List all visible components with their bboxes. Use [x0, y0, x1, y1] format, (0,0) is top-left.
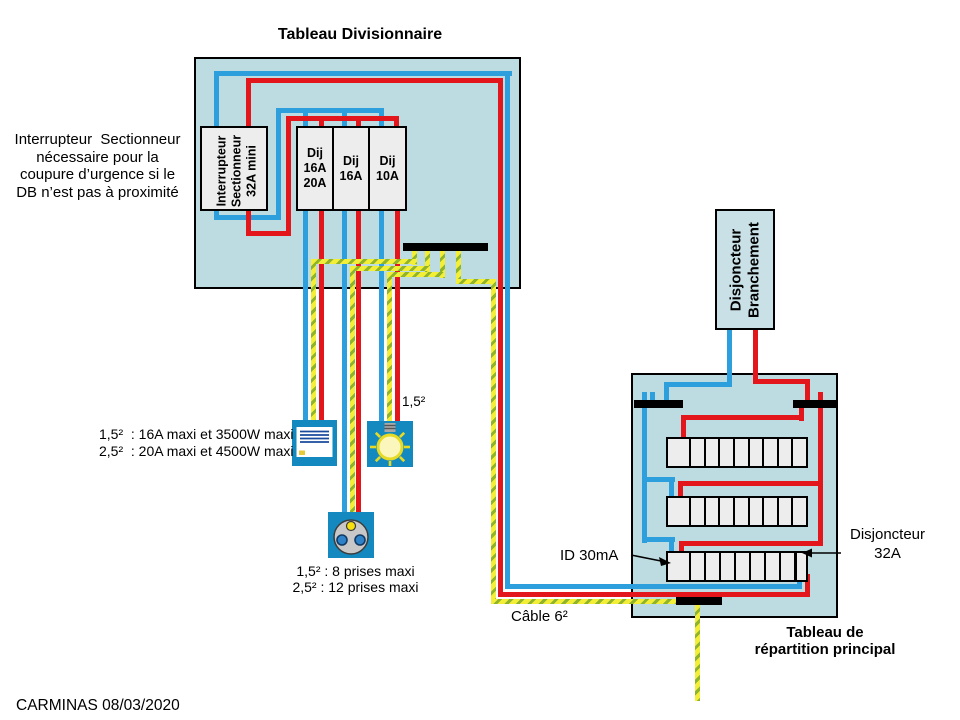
wire-phase-feed-drop — [498, 78, 503, 597]
module-cell — [720, 439, 735, 466]
module-cell — [766, 553, 781, 580]
wire-phase-db-down — [753, 329, 758, 384]
module-cell — [779, 439, 794, 466]
wire-phase-to-bulb — [395, 205, 400, 423]
module-cell — [706, 439, 721, 466]
module-cell-id30ma — [668, 553, 691, 580]
wire-neutral-bottom-run — [505, 584, 802, 589]
wire-phase-row3-h — [679, 541, 823, 546]
breaker-dij-16a-20a: Dij 16A 20A — [296, 126, 334, 211]
wire-neutral-to-bulb — [379, 205, 384, 423]
module-cell — [720, 498, 735, 525]
module-cell — [668, 439, 691, 466]
earth-bar-principal — [676, 597, 722, 605]
module-cell — [750, 439, 765, 466]
wire-earth-to-bulb — [387, 272, 392, 422]
wire-earth-to-socket — [350, 266, 355, 513]
footer-author-date: CARMINAS 08/03/2020 — [16, 697, 180, 715]
breaker-dij-10a: Dij 10A — [368, 126, 407, 211]
wire-neutral-db-down — [727, 329, 732, 386]
phase-bar-principal — [793, 400, 836, 408]
module-cell — [793, 439, 806, 466]
wire-phase-top-run — [246, 78, 503, 83]
isolator-label-line2: Sectionneur — [229, 128, 244, 213]
module-cell — [706, 498, 721, 525]
isolator-switch-box: Interrupteur Sectionneur 32A mini — [200, 126, 268, 211]
module-cell — [735, 439, 750, 466]
wire-phase-bus-riser — [286, 116, 291, 236]
breaker1-l1: Dij — [298, 146, 332, 161]
module-cell — [750, 498, 765, 525]
note-line3: coupure d’urgence si le — [0, 166, 195, 184]
wire-phase-bottom-run — [498, 592, 810, 597]
wire-neutral-feed-drop — [505, 71, 510, 589]
wire-earth-h2 — [350, 266, 430, 271]
wire-neutral-row2-v — [669, 477, 674, 498]
module-cell — [781, 553, 794, 580]
wire-phase-isolator-h — [246, 231, 291, 236]
db-label-line1: Disjoncteur — [727, 209, 745, 330]
module-cell — [751, 553, 766, 580]
principal-line1: Tableau de — [740, 624, 910, 641]
wire-neutral-db-h — [664, 382, 732, 387]
module-cell — [736, 553, 751, 580]
wire-phase-row1-h — [681, 415, 804, 420]
db-label-line2: Branchement — [745, 209, 763, 330]
note-interrupteur-sectionneur: Interrupteur Sectionneur nécessaire pour… — [0, 131, 195, 201]
heater-icon — [292, 420, 337, 466]
note-line1: Interrupteur Sectionneur — [0, 131, 195, 149]
wire-earth-bottom-run — [491, 599, 682, 604]
wire-neutral-to-socket — [342, 205, 347, 513]
wire-earth-to-heater — [311, 259, 316, 421]
wire-earth-h3 — [387, 272, 445, 277]
label-cable-6: Câble 6² — [511, 608, 568, 625]
module-cell — [691, 439, 706, 466]
label-id-30ma: ID 30mA — [560, 547, 618, 564]
socket-glyph — [328, 512, 374, 558]
note-prises-maxi: 1,5² : 8 prises maxi 2,5² : 12 prises ma… — [288, 564, 423, 595]
wiring-diagram: Interrupteur Sectionneur 32A mini Dij 16… — [0, 0, 960, 720]
wire-earth-main-down — [695, 605, 700, 701]
wire-phase-row1-v2 — [681, 415, 686, 439]
prises-line1: 1,5² : 8 prises maxi — [288, 564, 423, 580]
wire-earth-h4 — [456, 279, 496, 284]
wire-phase-to-socket — [356, 205, 361, 513]
breaker-dij-16a: Dij 16A — [332, 126, 370, 211]
module-row-3 — [666, 551, 808, 582]
wire-earth-feed-drop — [491, 279, 496, 604]
wire-neutral-bus-riser — [276, 108, 281, 220]
heater-glyph — [292, 420, 337, 466]
module-cell — [793, 498, 806, 525]
label-section-1-5: 1,5² — [402, 394, 425, 409]
principal-line2: répartition principal — [740, 641, 910, 658]
title-tableau-divisionnaire: Tableau Divisionnaire — [250, 26, 470, 44]
wire-phase-riser — [246, 78, 251, 128]
module-cell — [779, 498, 794, 525]
breaker3-l1: Dij — [370, 154, 405, 169]
light-bulb-icon — [367, 421, 413, 467]
module-cell — [668, 498, 691, 525]
wire-neutral-bus — [276, 108, 384, 113]
module-cell — [691, 553, 706, 580]
breaker1-l3: 20A — [298, 176, 332, 191]
wire-phase-db-h — [753, 379, 810, 384]
neutral-bar-principal — [634, 400, 683, 408]
title-tableau-principal: Tableau de répartition principal — [740, 624, 910, 658]
module-cell — [764, 498, 779, 525]
note-line2: nécessaire pour la — [0, 149, 195, 167]
module-cell — [706, 553, 721, 580]
maxi-line1: 1,5² : 16A maxi et 3500W maxi — [99, 426, 294, 443]
wire-neutral-riser — [214, 71, 219, 128]
module-cell — [735, 498, 750, 525]
module-cell — [721, 553, 736, 580]
wire-phase-bus — [286, 116, 399, 121]
bulb-glyph — [367, 421, 413, 467]
maxi-line2: 2,5² : 20A maxi et 4500W maxi — [99, 443, 294, 460]
module-row-1 — [666, 437, 808, 468]
socket-outlet-icon — [328, 512, 374, 558]
breaker3-l2: 10A — [370, 169, 405, 184]
module-cell — [764, 439, 779, 466]
wire-phase-to-heater — [319, 205, 324, 421]
module-cell-disjoncteur-32a — [794, 553, 806, 580]
wire-phase-row2-h — [678, 481, 823, 486]
isolator-label-line1: Interrupteur — [214, 128, 229, 213]
dj32-line2: 32A — [840, 544, 935, 563]
note-line4: DB n’est pas à proximité — [0, 184, 195, 202]
label-disjoncteur-32a: Disjoncteur 32A — [840, 525, 935, 563]
dj32-line1: Disjoncteur — [840, 525, 935, 544]
wire-neutral-left-drop — [642, 392, 647, 543]
breaker1-l2: 16A — [298, 161, 332, 176]
breaker2-l1: Dij — [334, 154, 368, 169]
disjoncteur-branchement-box: Disjoncteur Branchement — [715, 209, 775, 330]
wire-neutral-top-run — [214, 71, 512, 76]
prises-line2: 2,5² : 12 prises maxi — [288, 580, 423, 596]
module-cell — [691, 498, 706, 525]
wire-phase-right-drop — [818, 392, 823, 543]
module-row-2 — [666, 496, 808, 527]
wire-earth-h1 — [311, 259, 417, 264]
note-maxi-power: 1,5² : 16A maxi et 3500W maxi 2,5² : 20A… — [99, 426, 294, 460]
wire-neutral-to-heater — [303, 205, 308, 421]
isolator-label-line3: 32A mini — [244, 128, 259, 213]
breaker2-l2: 16A — [334, 169, 368, 184]
earth-bar-divisionnaire — [403, 243, 488, 251]
